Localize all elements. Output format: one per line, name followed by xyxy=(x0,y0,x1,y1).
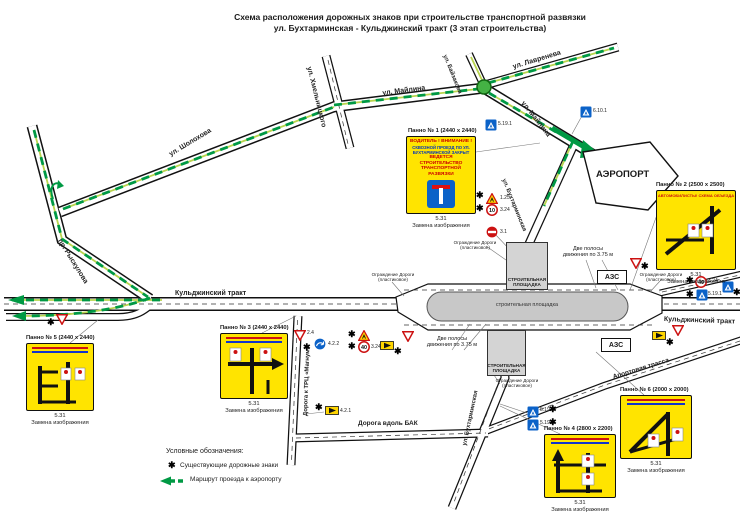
scheme-page: 10 40 xyxy=(0,0,740,518)
detour-left-sign-icon xyxy=(315,339,326,350)
airport-label: АЭРОПОРТ xyxy=(596,170,649,180)
panel-3-code: 5.31 xyxy=(220,401,288,407)
crosswalk-sign-icon xyxy=(528,407,539,418)
site-label-2: ПЛОЩАДКА xyxy=(493,368,521,373)
crosswalk-sign-icon xyxy=(697,290,708,301)
give-way-sign-icon xyxy=(673,326,683,335)
crosswalk-sign-icon xyxy=(486,120,497,131)
panel-4-note: Замена изображения xyxy=(544,507,616,513)
gas-station-2: АЗС xyxy=(601,338,631,352)
panel-1-text-3: ВЕДЕТСЯ СТРОИТЕЛЬСТВО ТРАНСПОРТНОЙ РАЗВЯ… xyxy=(409,155,473,178)
panel-1-label: Панно № 1 (2440 х 2440) xyxy=(408,128,477,134)
panel-5-code: 5.31 xyxy=(26,413,94,419)
existing-sign-star: ✱ xyxy=(303,343,311,352)
title-line-1: Схема расположения дорожных знаков при с… xyxy=(190,12,630,23)
sign-code-speed-limit: 3.24 xyxy=(708,279,718,285)
no-entry-sign-icon xyxy=(487,227,498,238)
construction-oval-label: строительная площадка xyxy=(447,302,607,308)
sign-code-give-way: 2.4 xyxy=(307,331,314,337)
existing-sign-star: ✱ xyxy=(686,290,694,299)
panel-3-note: Замена изображения xyxy=(220,408,288,414)
sign-code-speed-limit: 3.24 xyxy=(371,345,381,351)
panel-1-note: Замена изображения xyxy=(406,223,476,229)
road-works-sign-icon xyxy=(487,194,498,204)
existing-sign-star: ✱ xyxy=(476,204,484,213)
panel-5-diagram xyxy=(28,354,92,408)
two-lanes-note-1: Две полосыдвижения по 3.75 м xyxy=(556,246,620,259)
existing-sign-star: ✱ xyxy=(641,262,649,271)
street-label-bak: Дорога вдоль БАК xyxy=(358,420,418,427)
existing-sign-star: ✱ xyxy=(476,191,484,200)
panel-3 xyxy=(220,333,288,399)
give-way-sign-icon xyxy=(403,332,413,341)
sign-code-detour-left: 4.2.2 xyxy=(328,342,339,348)
panel-3-diagram xyxy=(222,344,286,396)
panel-1: ВОДИТЕЛЬ ! ВНИМАНИЕ ! СКВОЗНОЙ ПРОЕЗД ПО… xyxy=(406,136,476,214)
gas-station-1: АЗС xyxy=(597,270,627,284)
roundabout xyxy=(477,80,491,94)
panel-6-code: 5.31 xyxy=(620,461,692,467)
panel-2: АВТОМОБИЛИСТЫ! СХЕМА ОБЪЕЗДА xyxy=(656,190,736,270)
sign-code-crosswalk: 5.19.1 xyxy=(708,292,722,298)
dead-end-sign-icon xyxy=(427,180,455,208)
info-sign-icon xyxy=(581,107,592,118)
existing-sign-star: ✱ xyxy=(733,288,740,297)
detour-board-icon xyxy=(653,332,666,340)
panel-2-header: АВТОМОБИЛИСТЫ! СХЕМА ОБЪЕЗДА xyxy=(657,193,735,198)
fence-note-2: Ограждение Дороги(пластиковое) xyxy=(368,272,418,283)
fence-note-1: Ограждение Дороги(пластиковое) xyxy=(450,240,500,251)
panel-6-label: Панно № 6 (2000 х 2000) xyxy=(620,387,689,393)
existing-sign-star: ✱ xyxy=(549,405,557,414)
existing-sign-star: ✱ xyxy=(348,342,356,351)
panel-6-note: Замена изображения xyxy=(620,468,692,474)
fence-note-4: Ограждение Дороги(пластиковое) xyxy=(492,378,542,389)
road-ryskulova xyxy=(32,126,150,299)
existing-sign-star: ✱ xyxy=(348,330,356,339)
page-title: Схема расположения дорожных знаков при с… xyxy=(190,12,630,34)
existing-sign-star: ✱ xyxy=(666,338,674,347)
construction-site-north: СТРОИТЕЛЬНАЯ ПЛОЩАДКА xyxy=(506,242,548,290)
construction-site-south: СТРОИТЕЛЬНАЯ ПЛОЩАДКА xyxy=(487,330,526,376)
panel-2-diagram xyxy=(658,198,734,262)
existing-sign-star: ✱ xyxy=(394,347,402,356)
legend-heading: Условные обозначения: xyxy=(166,448,244,456)
existing-sign-star: ✱ xyxy=(315,403,323,412)
sign-code-no-entry: 3.1 xyxy=(500,230,507,236)
detour-board-icon xyxy=(326,407,339,415)
sign-code-detour-right: 4.2.1 xyxy=(340,409,351,415)
panel-3-label: Панно № 3 (2440 х 2440) xyxy=(220,325,289,331)
title-line-2: ул. Бухтарминская - Кульджинский тракт (… xyxy=(190,23,630,34)
panel-5 xyxy=(26,343,94,411)
crosswalk-sign-icon xyxy=(528,420,539,431)
two-lanes-note-2: Две полосыдвижения по 3.75 м xyxy=(420,336,484,349)
road-works-sign-icon xyxy=(359,331,370,341)
existing-sign-star: ✱ xyxy=(686,276,694,285)
panel-6 xyxy=(620,395,692,459)
panel-4-diagram xyxy=(546,445,614,495)
detour-board-icon xyxy=(381,342,394,350)
existing-sign-star: ✱ xyxy=(549,418,557,427)
panel-2-label: Панно № 2 (2500 х 2500) xyxy=(656,182,725,188)
panel-4 xyxy=(544,434,616,498)
speed-limit-40-sign-icon xyxy=(359,342,369,352)
site-label-2: ПЛОЩАДКА xyxy=(513,282,541,287)
fence-note-3: Ограждение Дороги(пластиковое) xyxy=(636,272,686,283)
street-label-kuldzhinsky-left: Кульджинский тракт xyxy=(175,290,246,298)
sign-code-info: 6.10.1 xyxy=(593,109,607,115)
panel-4-code: 5.31 xyxy=(544,500,616,506)
panel-1-code: 5.31 xyxy=(406,216,476,222)
legend-star-icon: ✱ xyxy=(168,461,176,470)
leader-lines xyxy=(70,114,660,434)
panel-5-note: Замена изображения xyxy=(26,420,94,426)
legend-route-arrow-icon xyxy=(160,476,186,486)
panel-6-diagram xyxy=(622,406,690,456)
sign-code-speed-limit: 3.24 xyxy=(500,208,510,214)
speed-limit-10-sign-icon xyxy=(487,205,497,215)
legend-existing-signs: Существующие дорожные знаки xyxy=(180,462,278,469)
existing-sign-star: ✱ xyxy=(47,318,55,327)
panel-1-text-1: ВОДИТЕЛЬ ! ВНИМАНИЕ ! xyxy=(409,139,473,145)
sign-code-crosswalk: 5.19.1 xyxy=(498,122,512,128)
panel-1-text-2: СКВОЗНОЙ ПРОЕЗД ПО УЛ. БУХТАРМИНСКОЙ ЗАК… xyxy=(409,145,473,155)
sign-code-road-works: 1.25 xyxy=(500,196,510,202)
legend-airport-route: Маршрут проезда к аэропорту xyxy=(190,476,282,483)
panel-5-label: Панно № 5 (2440 х 2440) xyxy=(26,335,95,341)
